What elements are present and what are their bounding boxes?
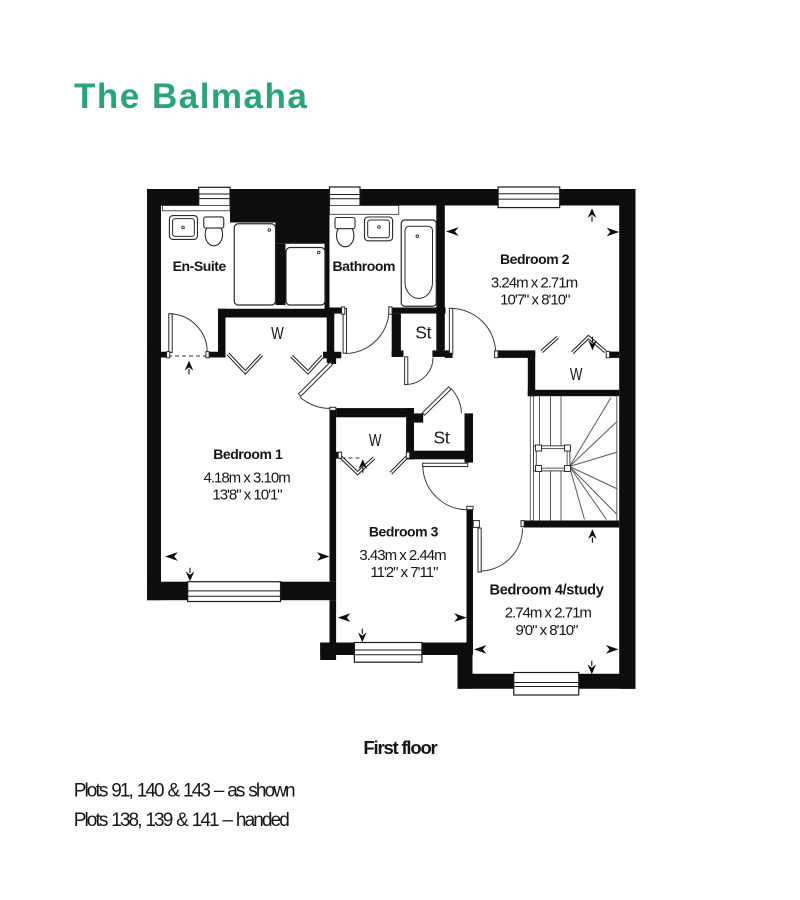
svg-text:Bedroom 4/study: Bedroom 4/study [490, 583, 605, 599]
svg-text:Bedroom 3: Bedroom 3 [369, 524, 439, 540]
svg-text:3.43m x 2.44m: 3.43m x 2.44m [359, 547, 446, 564]
svg-text:2.74m x 2.71m: 2.74m x 2.71m [505, 604, 592, 621]
svg-text:4.18m x 3.10m: 4.18m x 3.10m [203, 469, 290, 486]
svg-text:Plots 91, 140 & 143 – as shown: Plots 91, 140 & 143 – as shown [74, 781, 295, 802]
svg-text:10'7" x 8'10": 10'7" x 8'10" [500, 291, 570, 308]
svg-text:En-Suite: En-Suite [173, 258, 227, 274]
svg-text:W: W [271, 324, 284, 343]
svg-text:11'2" x 7'11": 11'2" x 7'11" [370, 564, 438, 581]
svg-text:The Balmaha: The Balmaha [74, 77, 308, 116]
svg-text:W: W [570, 365, 583, 384]
svg-text:St: St [415, 323, 431, 343]
svg-text:St: St [434, 428, 450, 448]
svg-text:13'8" x 10'1": 13'8" x 10'1" [212, 487, 282, 504]
svg-text:Bathroom: Bathroom [332, 258, 395, 274]
svg-text:Plots 138, 139 & 141 – handed: Plots 138, 139 & 141 – handed [74, 810, 290, 831]
svg-text:W: W [369, 431, 382, 450]
svg-text:3.24m x 2.71m: 3.24m x 2.71m [491, 275, 578, 292]
svg-text:9'0" x 8'10": 9'0" x 8'10" [516, 622, 579, 639]
svg-text:Bedroom 2: Bedroom 2 [500, 251, 570, 267]
svg-text:Bedroom 1: Bedroom 1 [213, 446, 283, 462]
svg-text:First floor: First floor [363, 737, 437, 758]
